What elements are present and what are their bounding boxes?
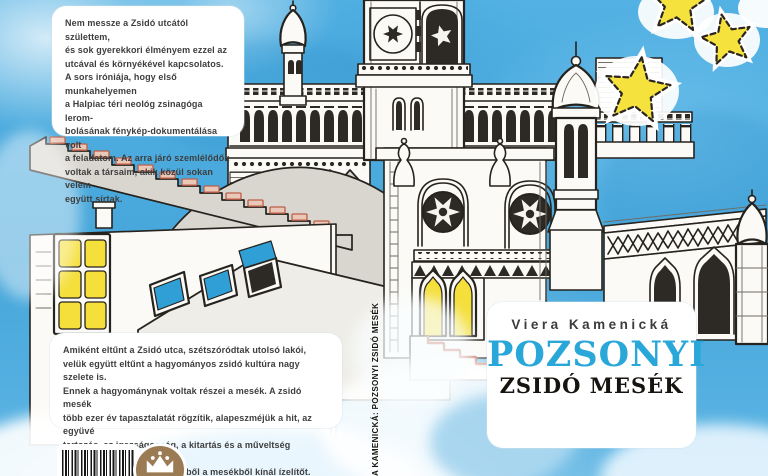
book-title-line2: ZSIDÓ MESÉK xyxy=(487,375,696,396)
yellow-window xyxy=(54,234,110,334)
spine-title: A KAMENICKÁ: POZSONYI ZSIDÓ MESÉK xyxy=(371,303,380,476)
front-cover-title-box: Viera Kamenická POZSONYI ZSIDÓ MESÉK xyxy=(487,302,696,448)
back-cover-quote-box: Nem messze a Zsidó utcától születtem,és … xyxy=(52,6,244,136)
ean-barcode-icon xyxy=(62,450,134,476)
back-cover-blurb-box: Amiként eltűnt a Zsidó utca, szétszóródt… xyxy=(50,333,342,428)
book-cover-spread: Nem messze a Zsidó utcától születtem,és … xyxy=(0,0,768,476)
central-tower xyxy=(356,0,472,160)
left-onion-turret xyxy=(280,1,306,105)
barcode xyxy=(57,444,139,476)
back-cover-quote-text: Nem messze a Zsidó utcától születtem,és … xyxy=(52,6,244,217)
author-name: Viera Kamenická xyxy=(487,317,696,332)
crown-in-circle-icon xyxy=(136,446,184,476)
publisher-logo xyxy=(133,443,187,476)
book-title-line1: POZSONYI xyxy=(487,337,696,372)
